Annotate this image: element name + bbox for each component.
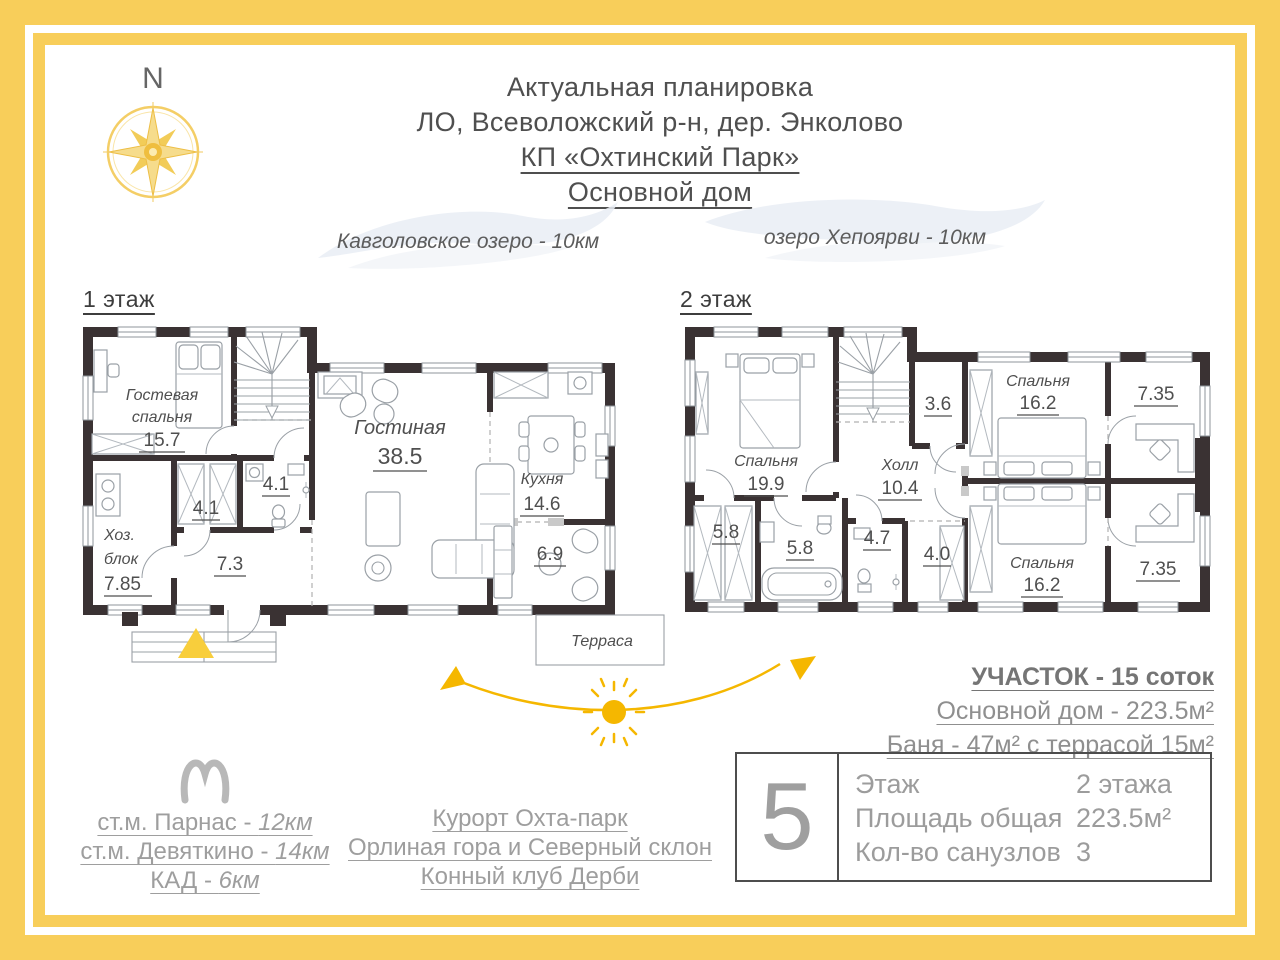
armchair-icon xyxy=(568,525,601,605)
summary-label: Этаж xyxy=(855,767,920,801)
desk-icon xyxy=(1136,494,1194,542)
plot-line-2: Основной дом - 223.5м² xyxy=(887,694,1214,728)
room-name-label: Спальня xyxy=(1010,555,1074,572)
lake-label-right: озеро Хепоярви - 10км xyxy=(705,192,1045,272)
transport-distance: 6км xyxy=(219,867,260,894)
summary-box: 5 Этаж 2 этажа Площадь общая 223.5м² Кол… xyxy=(735,752,1212,882)
bed-icon xyxy=(998,418,1086,478)
room-name-label: Холл xyxy=(881,457,919,474)
wardrobe-icon xyxy=(696,372,708,434)
sun-path xyxy=(428,634,828,749)
summary-row: Площадь общая 223.5м² xyxy=(855,801,1194,835)
summary-label: Кол-во санузлов xyxy=(855,835,1061,869)
bed-icon xyxy=(998,484,1086,544)
stove-icon xyxy=(96,474,120,516)
toilet-icon xyxy=(272,505,285,527)
transport-line: КАД - 6км xyxy=(45,866,365,895)
lake-right-text: озеро Хепоярви - 10км xyxy=(705,226,1045,250)
transport-distance: 14км xyxy=(275,838,329,865)
attractions-info: Курорт Охта-парк Орлиная гора и Северный… xyxy=(330,804,730,891)
room-area-label: 5.8 xyxy=(713,522,739,543)
room-area-label: 4.1 xyxy=(193,498,219,519)
transport-label: ст.м. Парнас - xyxy=(97,809,258,836)
summary-row: Этаж 2 этажа xyxy=(855,767,1194,801)
room-area-label: 6.9 xyxy=(537,544,563,565)
appliance-icon xyxy=(596,434,608,478)
room-area-label: 4.1 xyxy=(263,474,289,495)
title-line-3: КП «Охтинский Парк» xyxy=(300,140,1020,175)
floor2-plan: Спальня 19.9 Холл 10.4 3.6 5.8 5.8 4.7 4… xyxy=(678,316,1218,616)
room-area-label: 7.35 xyxy=(1140,559,1177,580)
sun-path-arrow-right xyxy=(790,656,816,680)
plot-line-1: УЧАСТОК - 15 соток xyxy=(887,660,1214,694)
attraction-line: Курорт Охта-парк xyxy=(330,804,730,833)
room-area-label: 10.4 xyxy=(882,478,919,499)
metro-logo-icon xyxy=(177,748,233,804)
room-area-label: 19.9 xyxy=(748,474,785,495)
title-block: Актуальная планировка ЛО, Всеволожский р… xyxy=(300,70,1020,210)
room-area-label: 7.35 xyxy=(1138,384,1175,405)
attraction-line: Конный клуб Дерби xyxy=(330,862,730,891)
floor1-stairs xyxy=(234,332,310,420)
dining-table-icon xyxy=(519,416,585,474)
bench-icon xyxy=(494,526,512,598)
room-area-label: 4.0 xyxy=(924,544,950,565)
room-name-label: Гостевая xyxy=(126,387,199,404)
room-name-label: Спальня xyxy=(1006,373,1070,390)
desk-icon xyxy=(94,350,119,392)
room-area-label: 38.5 xyxy=(378,443,423,469)
summary-rows: Этаж 2 этажа Площадь общая 223.5м² Кол-в… xyxy=(839,754,1210,880)
summary-value: 3 xyxy=(1076,835,1194,869)
room-area-label: 16.2 xyxy=(1024,575,1061,596)
washer-icon xyxy=(246,464,263,481)
sun-path-arrow-left xyxy=(440,666,466,690)
room-area-label: 14.6 xyxy=(524,494,561,515)
towel-rail-icon xyxy=(303,482,309,498)
compass-north-label: N xyxy=(88,62,218,96)
floor2-heading: 2 этаж xyxy=(680,286,752,313)
compass-rose-icon xyxy=(88,96,218,208)
floorplan-poster: N Актуальная планировка ЛО, Всеволожский… xyxy=(0,0,1280,960)
room-name-label: Хоз. xyxy=(103,527,135,544)
room-name-label: Кухня xyxy=(521,471,564,488)
room-area-label: 7.3 xyxy=(217,554,243,575)
summary-value: 2 этажа xyxy=(1076,767,1194,801)
coffee-table-icon xyxy=(366,492,400,546)
plot-info: УЧАСТОК - 15 соток Основной дом - 223.5м… xyxy=(887,660,1214,762)
sun-icon xyxy=(584,679,644,745)
room-area-label: 3.6 xyxy=(925,394,951,415)
desk-icon xyxy=(1136,424,1194,472)
floor1-plan: Гостевая спальня 15.7 Гостиная 38.5 Кухн… xyxy=(78,316,678,686)
transport-distance: 12км xyxy=(258,809,312,836)
summary-row: Кол-во санузлов 3 xyxy=(855,835,1194,869)
transport-info: ст.м. Парнас - 12км ст.м. Девяткино - 14… xyxy=(45,748,365,895)
floor2-stairs xyxy=(836,333,910,422)
room-name-label: спальня xyxy=(132,409,193,426)
room-area-label: 15.7 xyxy=(144,430,181,451)
transport-label: ст.м. Девяткино - xyxy=(80,838,275,865)
transport-line: ст.м. Парнас - 12км xyxy=(45,808,365,837)
bed-icon xyxy=(740,354,800,448)
sink-icon xyxy=(288,464,304,475)
chimney-block xyxy=(1195,438,1209,512)
toilet-icon xyxy=(858,569,871,592)
title-line-2: ЛО, Всеволожский р-н, дер. Энколово xyxy=(300,105,1020,140)
summary-value: 223.5м² xyxy=(1076,801,1194,835)
transport-line: ст.м. Девяткино - 14км xyxy=(45,837,365,866)
summary-label: Площадь общая xyxy=(855,801,1062,835)
room-area-label: 7.85 xyxy=(104,574,141,595)
attraction-line: Орлиная гора и Северный склон xyxy=(330,833,730,862)
lot-number: 5 xyxy=(737,754,839,880)
kitchen-counter-icon xyxy=(494,372,592,398)
toilet-icon xyxy=(817,516,831,534)
closet-icon xyxy=(694,506,752,600)
pouf-icon xyxy=(365,555,391,581)
transport-label: КАД - xyxy=(150,867,218,894)
lake-left-text: Кавголовское озеро - 10км xyxy=(318,230,618,254)
title-line-1: Актуальная планировка xyxy=(300,70,1020,105)
floor1-heading: 1 этаж xyxy=(83,286,155,313)
compass: N xyxy=(88,62,218,213)
bathtub-icon xyxy=(762,568,842,600)
towel-rail-icon xyxy=(893,574,899,590)
room-name-label: блок xyxy=(104,551,140,568)
room-area-label: 16.2 xyxy=(1020,393,1057,414)
room-area-label: 4.7 xyxy=(864,528,890,549)
porch xyxy=(122,612,286,662)
room-name-label: Гостиная xyxy=(354,417,446,439)
lake-label-left: Кавголовское озеро - 10км xyxy=(318,196,618,276)
sink-icon xyxy=(760,522,774,542)
room-area-label: 5.8 xyxy=(787,538,813,559)
room-name-label: Спальня xyxy=(734,453,798,470)
